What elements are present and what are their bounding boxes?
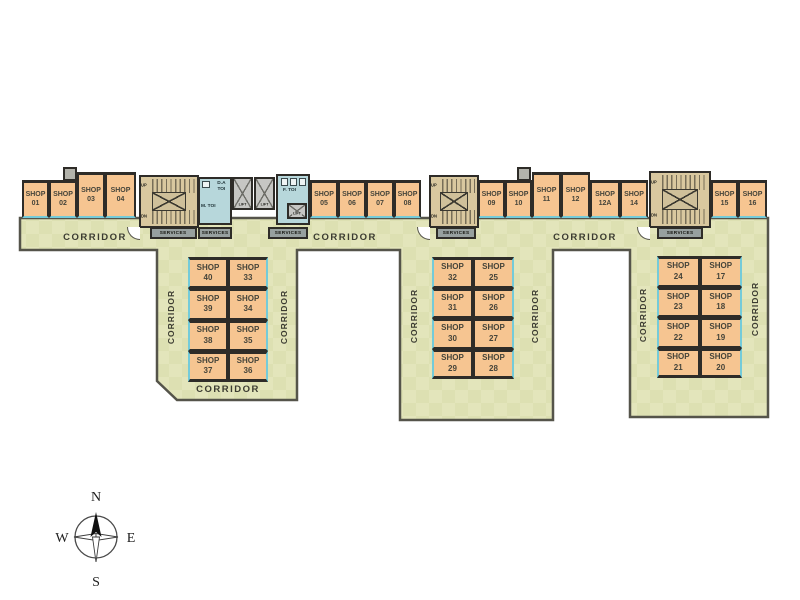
compass-rose: N S W E [50,483,142,593]
services-label: SERVICES [443,231,470,236]
shop-word: SHOP [743,191,763,200]
shop-unit-39: SHOP39 [188,288,228,319]
shop-word: SHOP [197,356,220,366]
shop-number: 33 [244,273,253,283]
shop-number: 40 [204,273,213,283]
lift-label: LIFT [237,203,248,207]
shop-number: 31 [448,303,457,313]
dn-label: DN [141,215,147,219]
urinal-fixture [299,178,306,186]
male-toilet-room: D.A TOI M. TOI [198,177,232,225]
shop-word: SHOP [566,187,586,196]
shop-unit-22: SHOP22 [657,317,700,348]
shop-unit-16: SHOP16 [738,180,767,218]
shop-number: 23 [674,302,683,312]
shop-word: SHOP [197,263,220,273]
f-toilet-label: F. TOI [283,188,296,193]
service-duct-tab [63,167,77,181]
shop-number: 24 [674,272,683,282]
lift-shaft-1: LIFT [232,177,253,210]
corridor-label: CORRIDOR [535,232,635,243]
services-label: SERVICES [275,231,302,236]
service-lift: LIFT [287,203,307,219]
shop-number: 38 [204,336,213,346]
shop-number: 15 [721,200,729,209]
floor-plan-canvas: SHOP01 SHOP02 SHOP03 SHOP04 SHOP05 SHOP0… [0,0,800,600]
shop-word: SHOP [482,323,505,333]
shop-number: 30 [448,334,457,344]
shop-unit-09: SHOP09 [478,180,505,218]
shop-unit-31: SHOP31 [432,288,473,319]
shop-number: 11 [543,196,550,205]
shop-unit-04: SHOP04 [105,172,136,218]
shop-number: 02 [59,200,67,209]
shop-unit-34: SHOP34 [228,288,268,319]
shop-unit-03: SHOP03 [77,172,105,218]
shop-number: 28 [489,364,498,374]
shop-unit-36: SHOP36 [228,351,268,382]
shop-number: 29 [448,364,457,374]
shop-unit-17: SHOP17 [700,256,743,287]
shop-word: SHOP [53,191,73,200]
shop-word: SHOP [624,191,644,200]
shop-number: 10 [515,200,523,209]
services-bar: SERVICES [150,227,197,239]
shop-number: 26 [489,303,498,313]
shop-unit-02: SHOP02 [49,180,77,218]
shop-word: SHOP [667,292,690,302]
shop-word: SHOP [237,356,260,366]
shop-unit-01: SHOP01 [22,180,49,218]
services-bar: SERVICES [436,227,476,239]
stair-landing [152,192,187,211]
stair-treads [442,179,475,193]
dn-label: DN [651,214,657,218]
shop-word: SHOP [709,322,732,332]
shop-number: 12A [599,200,612,209]
corridor-label-vertical: CORRIDOR [409,281,419,351]
shop-unit-21: SHOP21 [657,348,700,379]
lift-shaft-2: LIFT [254,177,275,210]
shop-word: SHOP [482,293,505,303]
shop-unit-15: SHOP15 [711,180,738,218]
corridor-label-vertical: CORRIDOR [750,274,760,344]
urinal-fixture [290,178,297,186]
shop-number: 14 [630,200,638,209]
shop-unit-20: SHOP20 [700,348,743,379]
shop-number: 27 [489,334,498,344]
corridor-label-vertical: CORRIDOR [279,282,289,352]
shop-unit-29: SHOP29 [432,349,473,380]
corridor-label-vertical: CORRIDOR [166,282,176,352]
dn-label: DN [431,215,437,219]
shop-word: SHOP [314,191,334,200]
stair-landing [662,189,698,209]
up-label: UP [141,184,147,188]
shop-unit-33: SHOP33 [228,257,268,288]
services-bar: SERVICES [198,227,232,239]
shop-number: 19 [716,333,725,343]
shop-unit-05: SHOP05 [310,180,338,218]
stair-treads [152,210,195,224]
shop-word: SHOP [26,191,46,200]
service-duct-tab [517,167,531,181]
toilet-fixture [202,181,210,188]
shop-unit-14: SHOP14 [620,180,648,218]
shop-word: SHOP [441,293,464,303]
shop-unit-12: SHOP12 [561,172,590,218]
shop-word: SHOP [441,323,464,333]
shop-number: 22 [674,333,683,343]
shop-number: 07 [376,200,384,209]
services-label: SERVICES [667,231,694,236]
shop-number: 05 [320,200,328,209]
shop-unit-12A: SHOP12A [590,180,620,218]
lift-label: LIFT [259,203,270,207]
lift-label: LIFT [292,212,302,216]
shop-word: SHOP [237,325,260,335]
stair-treads [662,209,707,224]
shop-number: 39 [204,304,213,314]
shop-number: 35 [244,336,253,346]
services-bar: SERVICES [268,227,308,239]
shop-word: SHOP [441,353,464,363]
shop-number: 34 [244,304,253,314]
compass-n: N [91,490,101,505]
urinal-fixture [281,178,288,186]
services-bar: SERVICES [657,227,703,239]
shop-unit-28: SHOP28 [473,349,514,380]
shop-word: SHOP [667,352,690,362]
stair-treads [152,179,195,193]
da-toilet-label: D.A TOI [215,181,228,192]
shop-word: SHOP [81,187,101,196]
corridor-label-vertical: CORRIDOR [530,281,540,351]
shop-word: SHOP [667,322,690,332]
shop-number: 21 [674,363,683,373]
shop-unit-06: SHOP06 [338,180,366,218]
shop-number: 18 [716,302,725,312]
shop-word: SHOP [709,352,732,362]
shop-unit-23: SHOP23 [657,287,700,318]
shop-word: SHOP [482,191,502,200]
shop-word: SHOP [237,263,260,273]
compass-s: S [92,575,100,590]
shop-unit-27: SHOP27 [473,318,514,349]
shop-unit-30: SHOP30 [432,318,473,349]
services-label: SERVICES [160,231,187,236]
shop-number: 01 [32,200,40,209]
shop-unit-19: SHOP19 [700,317,743,348]
shop-number: 36 [244,366,253,376]
corridor-label-vertical: CORRIDOR [638,280,648,350]
stair-treads [662,175,707,190]
shop-unit-32: SHOP32 [432,257,473,288]
shop-number: 25 [489,273,498,283]
shop-number: 03 [87,196,95,205]
shop-unit-25: SHOP25 [473,257,514,288]
shop-number: 32 [448,273,457,283]
wing3-shop-cluster: SHOP24 SHOP17 SHOP23 SHOP18 SHOP22 SHOP1… [657,256,742,378]
shop-word: SHOP [342,191,362,200]
shop-unit-26: SHOP26 [473,288,514,319]
services-label: SERVICES [202,231,229,236]
shop-number: 12 [572,196,580,205]
shop-unit-11: SHOP11 [532,172,561,218]
wing1-shop-cluster: SHOP40 SHOP33 SHOP39 SHOP34 SHOP38 SHOP3… [188,257,268,382]
shop-word: SHOP [197,325,220,335]
shop-number: 17 [716,272,725,282]
shop-unit-38: SHOP38 [188,320,228,351]
staircase-mid: UP DN [429,175,479,228]
stair-landing [440,192,469,211]
wing2-shop-cluster: SHOP32 SHOP25 SHOP31 SHOP26 SHOP30 SHOP2… [432,257,514,379]
shop-word: SHOP [715,191,735,200]
shop-word: SHOP [709,261,732,271]
shop-word: SHOP [537,187,557,196]
up-label: UP [651,181,657,185]
shop-word: SHOP [482,262,505,272]
m-toilet-label: M. TOI [201,204,216,209]
shop-word: SHOP [709,292,732,302]
staircase-west: UP DN [139,175,199,228]
shop-word: SHOP [237,294,260,304]
compass-w: W [55,531,69,546]
shop-word: SHOP [398,191,418,200]
shop-unit-10: SHOP10 [505,180,532,218]
shop-word: SHOP [197,294,220,304]
corridor-label: CORRIDOR [178,384,278,395]
shop-word: SHOP [370,191,390,200]
shop-number: 08 [404,200,412,209]
shop-unit-24: SHOP24 [657,256,700,287]
shop-word: SHOP [111,187,131,196]
shop-number: 20 [716,363,725,373]
shop-number: 06 [348,200,356,209]
shop-unit-35: SHOP35 [228,320,268,351]
shop-unit-18: SHOP18 [700,287,743,318]
shop-word: SHOP [441,262,464,272]
compass-e: E [127,531,136,546]
staircase-east: UP DN [649,171,711,228]
stair-treads [442,210,475,224]
shop-number: 04 [117,196,125,205]
corridor-label: CORRIDOR [295,232,395,243]
shop-unit-40: SHOP40 [188,257,228,288]
up-label: UP [431,184,437,188]
shop-word: SHOP [482,353,505,363]
shop-number: 37 [204,366,213,376]
shop-unit-07: SHOP07 [366,180,394,218]
shop-word: SHOP [667,261,690,271]
shop-unit-37: SHOP37 [188,351,228,382]
shop-word: SHOP [509,191,529,200]
shop-unit-08: SHOP08 [394,180,421,218]
shop-number: 09 [488,200,496,209]
shop-word: SHOP [595,191,615,200]
shop-number: 16 [749,200,757,209]
